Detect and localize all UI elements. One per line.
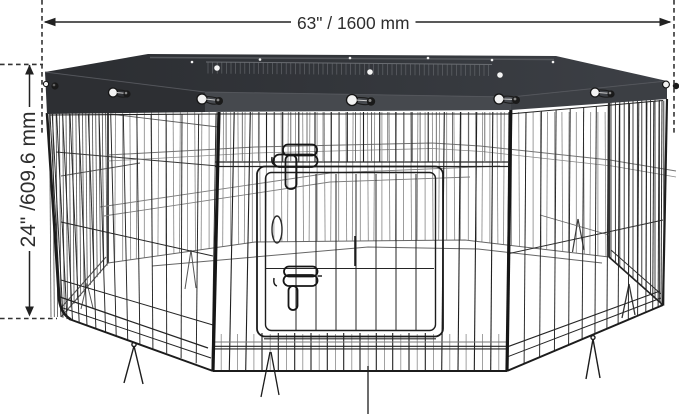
- svg-text:63" / 1600 mm: 63" / 1600 mm: [297, 13, 410, 33]
- svg-text:24" /609.6 mm: 24" /609.6 mm: [17, 112, 40, 248]
